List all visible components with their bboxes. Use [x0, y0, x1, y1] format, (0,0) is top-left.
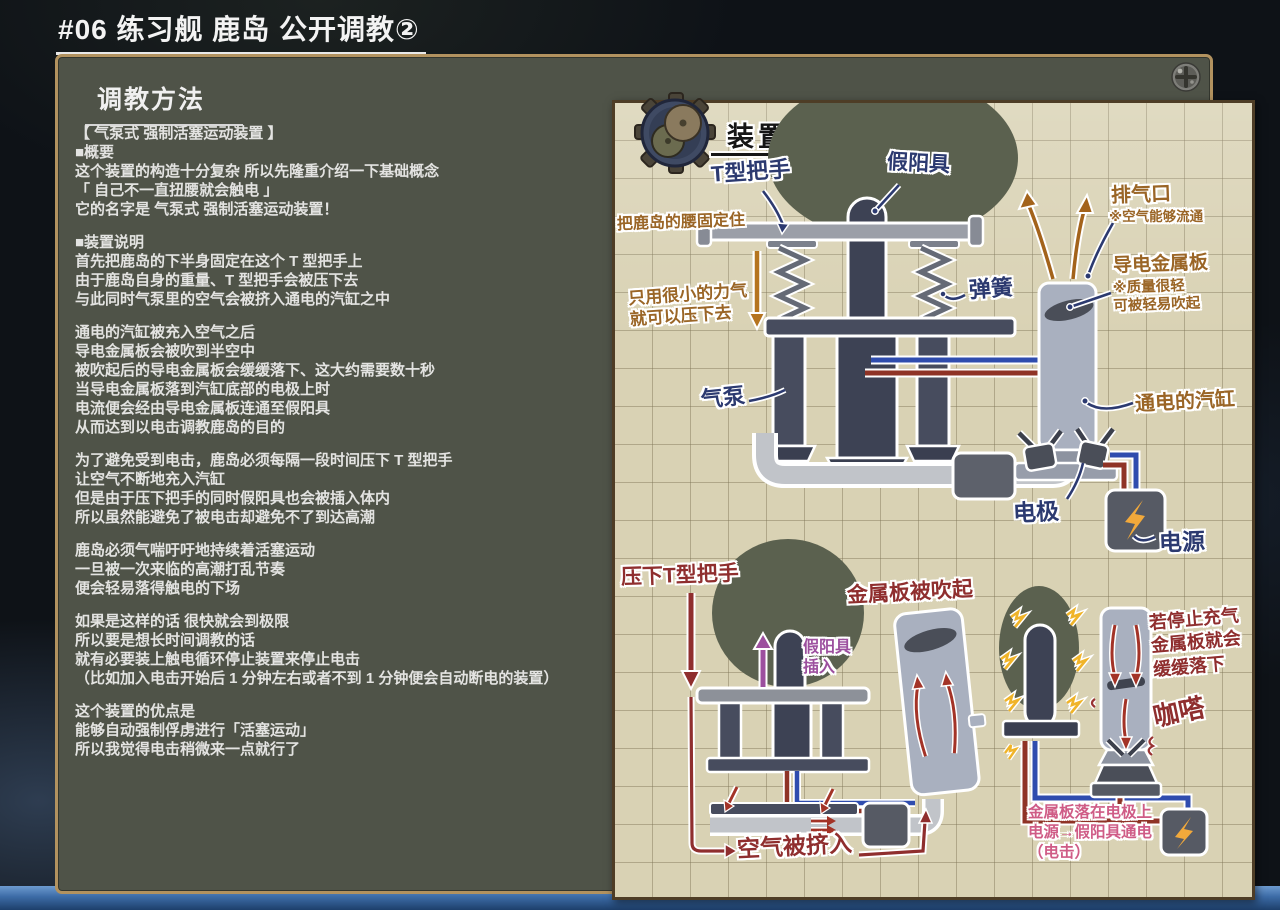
label-t-handle: T型把手: [710, 156, 791, 188]
paragraph-overview: 【 气泵式 强制活塞运动装置 】 ■概要 这个装置的构造十分复杂 所以先隆重介绍…: [75, 124, 605, 219]
label-electrode: 电极: [1012, 497, 1059, 527]
paragraph-limit: 如果是这样的话 很快就会到极限 所以要是想长时间调教的话 就有必要装上触电循环停…: [75, 612, 605, 688]
label-stop-pumping: 若停止充气 金属板就会 缓缓落下: [1148, 604, 1244, 682]
label-small-force: 只用很小的力气 就可以压下去: [628, 281, 750, 331]
label-press-handle: 压下T型把手: [621, 561, 740, 591]
label-plate-note: ※质量很轻 可被轻易吹起: [1112, 277, 1200, 315]
paragraph-merit: 这个装置的优点是 能够自动强制俘虏进行「活塞运动」 所以我觉得电击稍微来一点就行…: [75, 702, 605, 759]
screw-icon: [1170, 61, 1202, 93]
label-pump: 气泵: [700, 383, 747, 414]
label-exhaust-note: ※空气能够流通: [1109, 209, 1203, 225]
label-exhaust: 排气口: [1111, 182, 1172, 208]
paragraph-avoid-shock: 为了避免受到电击，鹿岛必须每隔一段时间压下 T 型把手 让空气不断地充入汽缸 但…: [75, 451, 605, 527]
label-dildo: 假阳具: [886, 149, 950, 178]
cylinder-2: [894, 606, 993, 795]
label-spring: 弹簧: [968, 274, 1014, 304]
label-metal-plate: 导电金属板: [1113, 251, 1209, 277]
article-body: 【 气泵式 强制活塞运动装置 】 ■概要 这个装置的构造十分复杂 所以先隆重介绍…: [75, 124, 605, 773]
label-power: 电源: [1159, 527, 1206, 557]
label-dildo-insert: 假阳具 插入: [803, 638, 851, 677]
paragraph-device-desc: ■装置说明 首先把鹿岛的下半身固定在这个 T 型把手上 由于鹿岛自身的重量、T …: [75, 233, 605, 309]
label-cylinder: 通电的汽缸: [1134, 387, 1235, 417]
label-shock-result: 金属板落在电极上 电源→假阳具通电 （电击）: [1028, 803, 1152, 863]
paragraph-piston: 鹿岛必须气喘吁吁地持续着活塞运动 一旦被一次来临的高潮打乱节奏 便会轻易落得触电…: [75, 541, 605, 598]
page-title: #06 练习舰 鹿岛 公开调教②: [56, 8, 426, 55]
article-heading: 调教方法: [85, 80, 243, 126]
paragraph-cylinder: 通电的汽缸被充入空气之后 导电金属板会被吹到半空中 被吹起后的导电金属板会缓缓落…: [75, 323, 605, 437]
label-air-in: 空气被挤入: [736, 829, 852, 863]
diagram-paper: 装置图解: [612, 100, 1255, 900]
